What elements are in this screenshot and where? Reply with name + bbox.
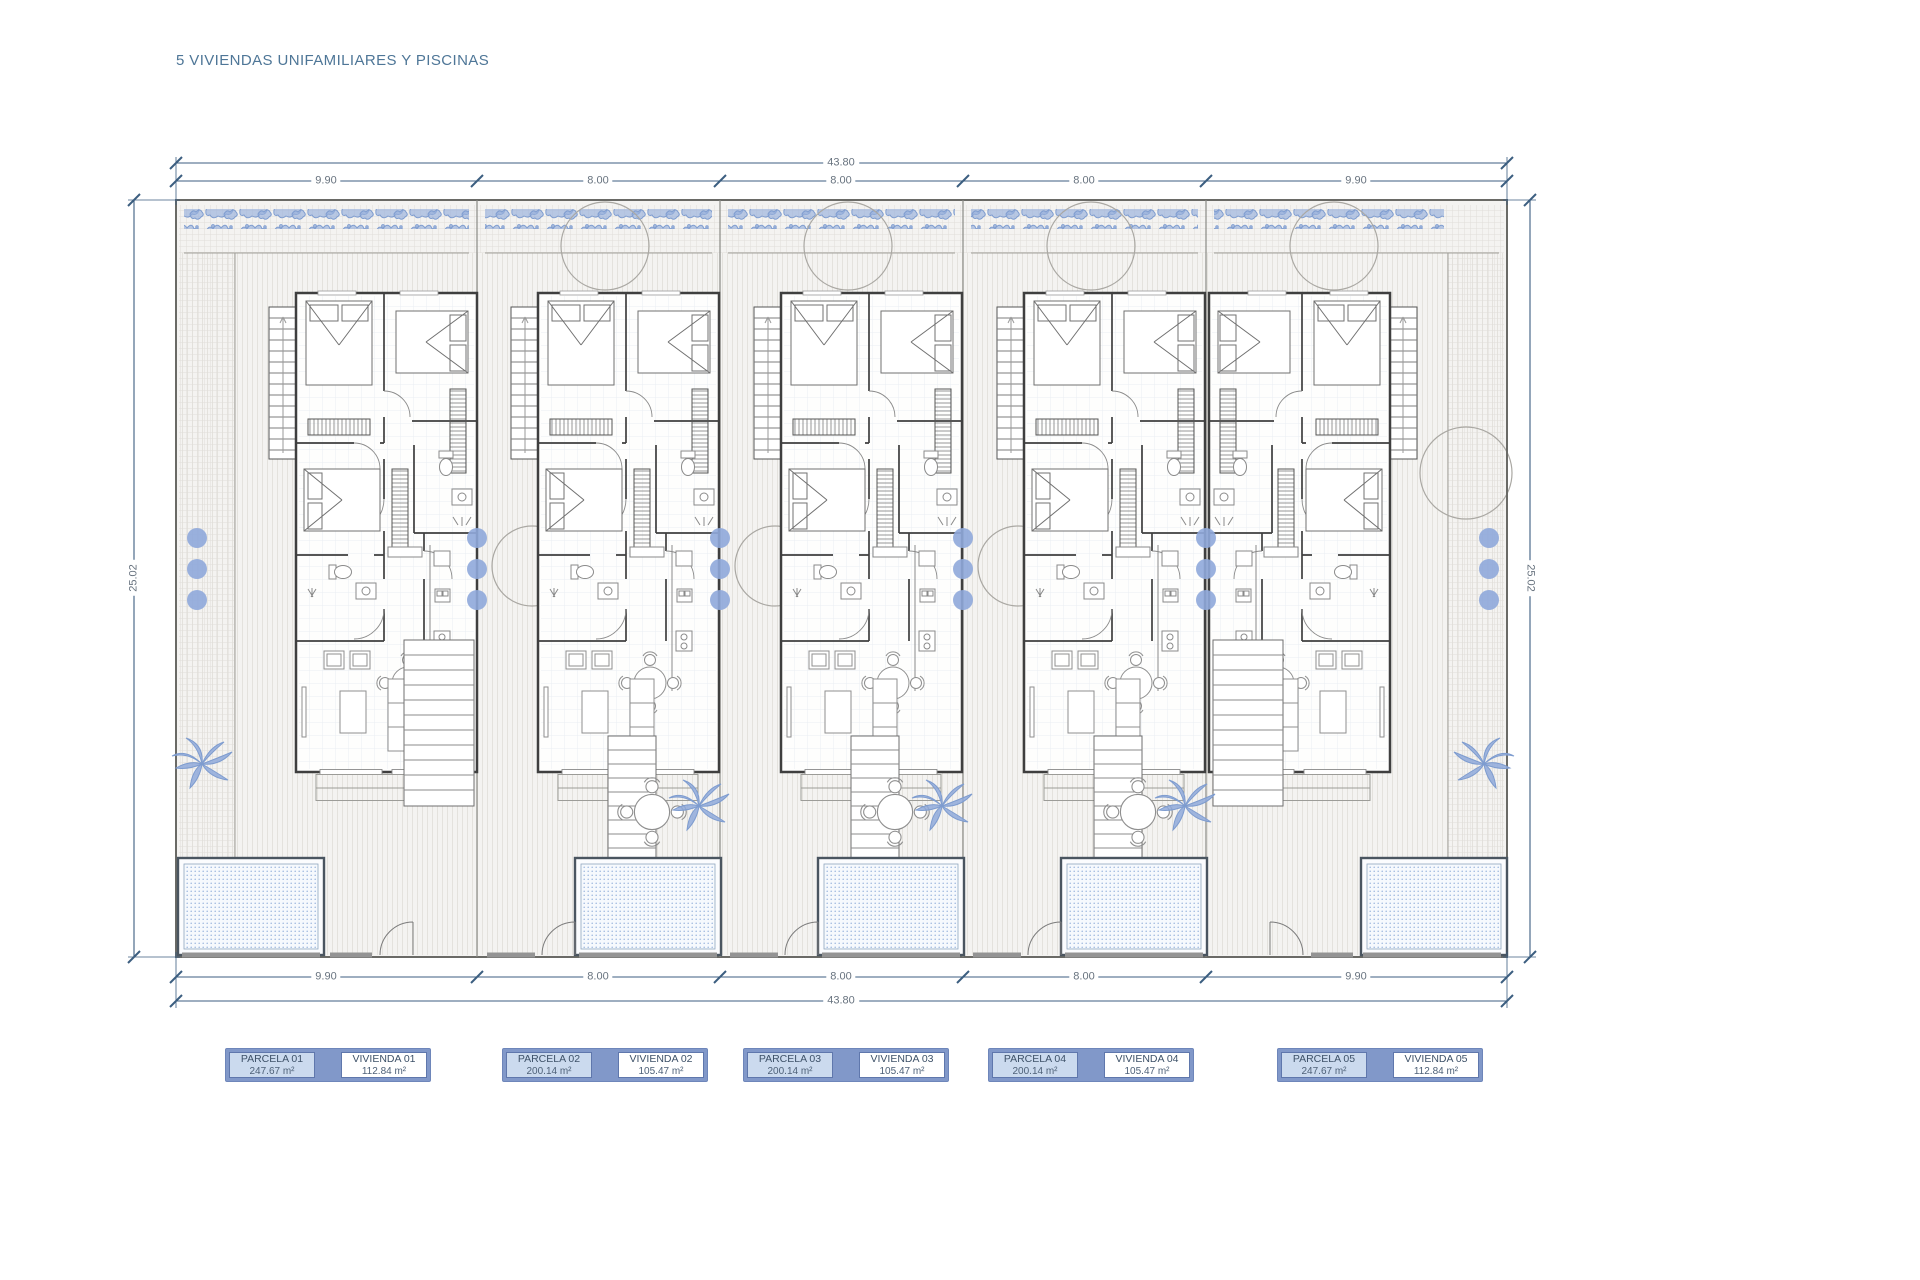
- vivienda-02-cell: VIVIENDA 02 105.47 m²: [618, 1052, 704, 1078]
- dim-parcel-top-5: 9.90: [1341, 175, 1370, 188]
- dim-total-bottom: 43.80: [823, 995, 859, 1008]
- parcela-05-cell: PARCELA 05 247.67 m²: [1281, 1052, 1367, 1078]
- area-legend: PARCELA 01 247.67 m² VIVIENDA 01 112.84 …: [0, 1048, 1920, 1088]
- vivienda-02-area: 105.47 m²: [638, 1066, 683, 1078]
- parcela-01-cell: PARCELA 01 247.67 m²: [229, 1052, 315, 1078]
- dim-depth-right: 25.02: [1524, 560, 1537, 596]
- vivienda-03-cell: VIVIENDA 03 105.47 m²: [859, 1052, 945, 1078]
- parcela-01-label: PARCELA 01: [241, 1053, 303, 1066]
- parcela-02-cell: PARCELA 02 200.14 m²: [506, 1052, 592, 1078]
- parcela-03-label: PARCELA 03: [759, 1053, 821, 1066]
- vivienda-05-cell: VIVIENDA 05 112.84 m²: [1393, 1052, 1479, 1078]
- dim-parcel-bottom-3: 8.00: [826, 971, 855, 984]
- parcela-04-label: PARCELA 04: [1004, 1053, 1066, 1066]
- dim-parcel-bottom-5: 9.90: [1341, 971, 1370, 984]
- floor-plan-sheet: 5 VIVIENDAS UNIFAMILIARES Y PISCINAS: [0, 0, 1920, 1280]
- parcela-02-label: PARCELA 02: [518, 1053, 580, 1066]
- site-plan-drawing: [0, 0, 1920, 1280]
- legend-parcel-3: PARCELA 03 200.14 m² VIVIENDA 03 105.47 …: [743, 1048, 949, 1082]
- parcela-03-area: 200.14 m²: [767, 1066, 812, 1078]
- dim-depth-left: 25.02: [128, 560, 141, 596]
- parcela-02-area: 200.14 m²: [526, 1066, 571, 1078]
- dim-parcel-bottom-1: 9.90: [311, 971, 340, 984]
- dim-parcel-bottom-4: 8.00: [1069, 971, 1098, 984]
- parcela-01-area: 247.67 m²: [249, 1066, 294, 1078]
- dim-parcel-top-4: 8.00: [1069, 175, 1098, 188]
- legend-parcel-5: PARCELA 05 247.67 m² VIVIENDA 05 112.84 …: [1277, 1048, 1483, 1082]
- vivienda-05-label: VIVIENDA 05: [1404, 1053, 1467, 1066]
- vivienda-04-label: VIVIENDA 04: [1115, 1053, 1178, 1066]
- dim-total-top: 43.80: [823, 157, 859, 170]
- legend-parcel-2: PARCELA 02 200.14 m² VIVIENDA 02 105.47 …: [502, 1048, 708, 1082]
- parcela-05-label: PARCELA 05: [1293, 1053, 1355, 1066]
- vivienda-04-area: 105.47 m²: [1124, 1066, 1169, 1078]
- vivienda-01-area: 112.84 m²: [362, 1066, 406, 1078]
- parcela-03-cell: PARCELA 03 200.14 m²: [747, 1052, 833, 1078]
- parcela-05-area: 247.67 m²: [1301, 1066, 1346, 1078]
- legend-parcel-1: PARCELA 01 247.67 m² VIVIENDA 01 112.84 …: [225, 1048, 431, 1082]
- dim-parcel-top-2: 8.00: [583, 175, 612, 188]
- dim-parcel-top-1: 9.90: [311, 175, 340, 188]
- dim-parcel-top-3: 8.00: [826, 175, 855, 188]
- vivienda-04-cell: VIVIENDA 04 105.47 m²: [1104, 1052, 1190, 1078]
- vivienda-05-area: 112.84 m²: [1414, 1066, 1458, 1078]
- parcela-04-area: 200.14 m²: [1012, 1066, 1057, 1078]
- dim-parcel-bottom-2: 8.00: [583, 971, 612, 984]
- vivienda-02-label: VIVIENDA 02: [629, 1053, 692, 1066]
- vivienda-01-label: VIVIENDA 01: [352, 1053, 415, 1066]
- vivienda-03-area: 105.47 m²: [879, 1066, 924, 1078]
- vivienda-01-cell: VIVIENDA 01 112.84 m²: [341, 1052, 427, 1078]
- legend-parcel-4: PARCELA 04 200.14 m² VIVIENDA 04 105.47 …: [988, 1048, 1194, 1082]
- vivienda-03-label: VIVIENDA 03: [870, 1053, 933, 1066]
- parcela-04-cell: PARCELA 04 200.14 m²: [992, 1052, 1078, 1078]
